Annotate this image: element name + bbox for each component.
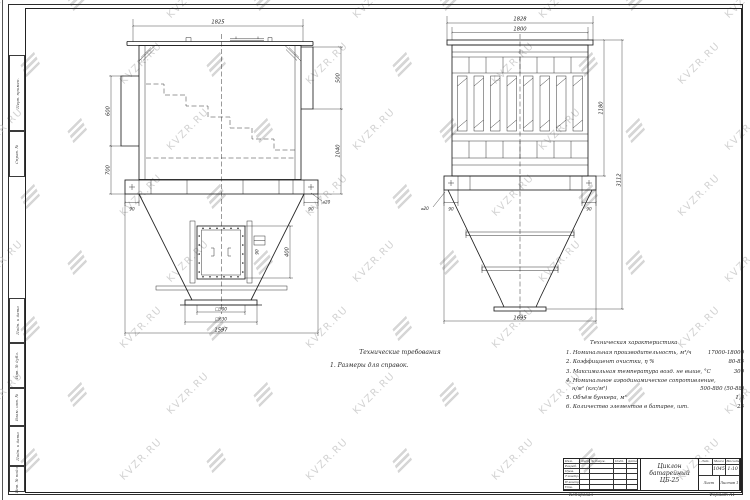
dim-label-600: 600 — [106, 105, 112, 116]
scale-label: Масштаб — [726, 459, 740, 464]
left-view-front: 1825 — [106, 19, 344, 336]
technical-requirements: Технические требования 1. Размеры для сп… — [330, 349, 470, 369]
scale-value: 1:10 — [726, 465, 740, 475]
title-block-footer: Копировал Формат А1 — [563, 492, 741, 497]
tech-char-value: 300 — [734, 369, 744, 375]
sheet-label: Лист — [699, 476, 720, 490]
dim-label-90r: 90 — [308, 207, 314, 212]
tech-char-value: 1,8 — [735, 395, 744, 401]
dim-label-90r: 90 — [586, 207, 592, 212]
dim-label-fitting: 90 — [255, 249, 260, 255]
dim-label-hole: ⌀20 — [421, 206, 429, 211]
tech-char-row: 4. Номинальное аэродинамическое сопротив… — [566, 378, 744, 384]
dim-label-90l: 90 — [129, 207, 135, 212]
dim-label-hole: ⌀20 — [323, 200, 331, 205]
tech-char-label: 1. Номинальная производительность, м³/ч — [566, 350, 692, 356]
dim-label-1828: 1828 — [513, 17, 527, 23]
tb-row-label: Утв. — [564, 485, 580, 490]
tech-char-value: 25 — [737, 404, 744, 410]
title-block: Изм. Лист № докум. Подп. Дата Разраб. Пр… — [563, 458, 741, 491]
tech-char-value: 500-880 (50-88) — [700, 386, 744, 392]
tech-char-label: 6. Количество элементов в батарее, шт. — [566, 404, 689, 410]
tech-char-value: 17000-18000 — [708, 350, 744, 356]
dim-label-1800: 1800 — [513, 27, 527, 33]
tech-char-row: 1. Номинальная производительность, м³/ч … — [566, 350, 744, 356]
right-view-side: 1828 1800 — [421, 16, 624, 324]
tech-char-row: 5. Объём бункера, м³ 1,8 — [566, 395, 744, 401]
tech-char-value: 80-85 — [728, 359, 744, 365]
tech-char-label2: н/м² (кгс/м²) — [572, 386, 607, 392]
tech-char-row: 2. Коэффициент очистки, η % 80-85 — [566, 359, 744, 365]
dim-label-500: 500 — [336, 72, 342, 83]
door-bolts — [198, 228, 243, 278]
drawing-sheet: KVZR.RUKVZR.RUKVZR.RUKVZR.RUKVZR.RUKVZR.… — [0, 0, 750, 500]
dim-label-3112: 3112 — [617, 173, 623, 186]
lit-label: Лит. — [699, 459, 713, 464]
tech-char-label: 5. Объём бункера, м³ — [566, 395, 627, 401]
dim-label-1825: 1825 — [211, 20, 225, 26]
tech-char-row: 3. Максимальная температура возд. не выш… — [566, 369, 744, 375]
mass-label: Масса — [713, 459, 727, 464]
technical-requirements-item: 1. Размеры для справок. — [330, 362, 470, 369]
dim-label-400: 400 — [285, 246, 291, 257]
copied-label: Копировал — [569, 492, 593, 497]
tech-char-label: 4. Номинальное аэродинамическое сопротив… — [566, 378, 716, 384]
drawing-canvas: 1825 — [0, 0, 750, 500]
product-designation: ЦБ-25 — [660, 478, 679, 485]
dim-label-1597: 1597 — [214, 328, 228, 334]
tech-char-row: 6. Количество элементов в батарее, шт. 2… — [566, 404, 744, 410]
technical-requirements-title: Технические требования — [330, 349, 470, 356]
title-block-attrs: Лит. Масса Масштаб 1045 1:10 Лист Листов… — [699, 459, 740, 490]
dim-label-700: 700 — [106, 164, 112, 175]
sheets-label: Листов 1 — [720, 476, 741, 490]
dim-label-sq630: □630 — [215, 317, 227, 322]
dim-label-1695: 1695 — [513, 316, 527, 322]
tech-char-label: 2. Коэффициент очистки, η % — [566, 359, 654, 365]
tech-char-row-cont: н/м² (кгс/м²) 500-880 (50-88) — [572, 386, 744, 392]
title-block-product-name: Циклон батарейный ЦБ-25 — [641, 459, 699, 490]
dim-label-90l: 90 — [448, 207, 454, 212]
technical-characteristics-title: Техническая характеристика — [590, 340, 744, 346]
title-block-signatures: Изм. Лист № докум. Подп. Дата Разраб. Пр… — [564, 459, 641, 490]
dim-label-sq500: □500 — [215, 307, 227, 312]
dim-label-1040: 1040 — [336, 144, 342, 158]
technical-characteristics: Техническая характеристика 1. Номинальна… — [566, 340, 744, 414]
dim-label-1180: 1180 — [599, 101, 605, 115]
lit-value — [699, 465, 713, 475]
mass-value: 1045 — [713, 465, 727, 475]
tech-char-label: 3. Максимальная температура возд. не выш… — [566, 369, 711, 375]
format-label: Формат А1 — [709, 492, 735, 497]
